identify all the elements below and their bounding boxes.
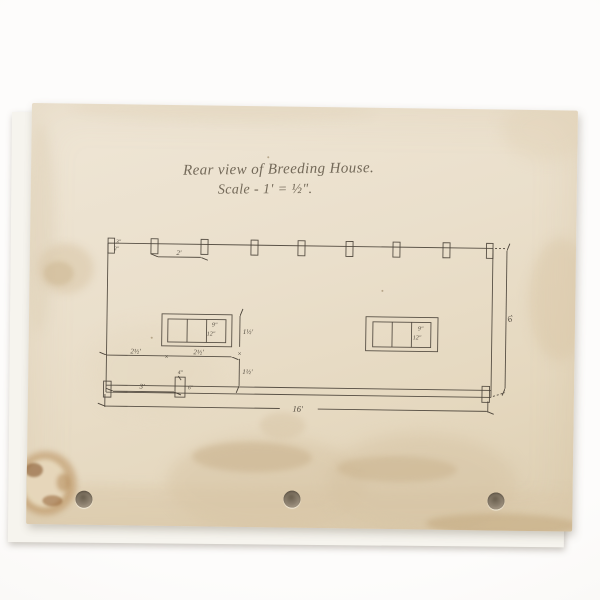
- dim-overall-width: 16': [293, 404, 304, 414]
- roof-posts: [108, 238, 493, 258]
- dim-window-left-pane-h: 12": [207, 331, 216, 337]
- dim-door-post-offset: 3': [138, 383, 145, 391]
- dim-window-left-pane-w: 9": [212, 323, 218, 329]
- punch-hole-left: [75, 491, 92, 508]
- dim-window-height: 1½': [243, 328, 254, 336]
- junction-x-horizontal: ×: [164, 353, 169, 361]
- dim-wall-to-window: 2½': [130, 347, 141, 355]
- dim-door-post-width: 4": [178, 369, 184, 376]
- dim-window-width: 2½': [193, 348, 204, 356]
- dim-window-right-pane-h: 12": [413, 335, 422, 341]
- elevation-drawing: 2' 3" 2" 9" 12" 9" 12" 1½' 1½' 2½' 2½' 6…: [26, 103, 578, 532]
- dim-window-right-pane-w: 9": [418, 326, 424, 332]
- punch-hole-center: [283, 491, 300, 508]
- dimension-lines: [105, 243, 507, 413]
- dim-corner-top: 3": [115, 239, 122, 245]
- dim-door-post-side: 6": [188, 385, 194, 391]
- dim-post-spacing: 2': [176, 249, 182, 257]
- window-right: [366, 317, 438, 352]
- window-left: [162, 314, 232, 347]
- wall-outline: [106, 243, 493, 397]
- dim-overall-height: 6': [505, 313, 515, 325]
- junction-x-vertical: ×: [237, 350, 242, 358]
- dim-below-window: 1½': [242, 368, 253, 376]
- paper-sheet: Rear view of Breeding House. Scale - 1' …: [26, 103, 578, 532]
- dim-corner-bottom: 2": [114, 246, 120, 252]
